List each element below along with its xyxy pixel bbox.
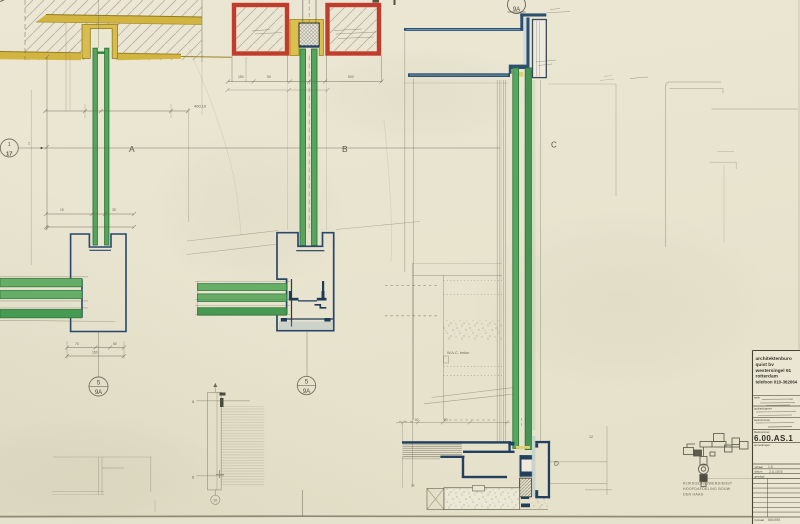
svg-text:12: 12 [589,435,593,439]
svg-text:150: 150 [238,75,244,79]
svg-text:quist bv: quist bv [756,362,775,368]
svg-text:A: A [129,144,135,154]
svg-text:datum: datum [755,470,763,474]
svg-text:150: 150 [92,351,98,355]
svg-text:460,10: 460,10 [194,104,207,109]
svg-text:opdrachtgever: opdrachtgever [754,406,772,410]
svg-text:werk: werk [754,396,761,400]
svg-text:2x: 2x [411,484,415,488]
svg-text:werknummer: werknummer [754,418,770,422]
svg-text:35: 35 [112,208,116,212]
svg-text:2-6-1976: 2-6-1976 [769,470,783,474]
svg-text:telefoon 010-362064: telefoon 010-362064 [756,380,798,385]
svg-text:opmerkingen: opmerkingen [754,443,771,447]
svg-text:HOOFDAFDELING BOUW: HOOFDAFDELING BOUW [683,487,731,491]
svg-text:6.00.AS.1: 6.00.AS.1 [754,434,793,443]
svg-text:DEN HAAG: DEN HAAG [683,493,704,497]
svg-text:2: 2 [28,142,30,146]
svg-text:architektenburo: architektenburo [756,356,792,362]
svg-text:80: 80 [113,342,117,346]
svg-text:15: 15 [60,208,64,212]
svg-text:9A: 9A [303,389,310,395]
svg-text:westersingel 91: westersingel 91 [755,368,792,374]
svg-text:10: 10 [213,499,217,503]
svg-text:50: 50 [415,418,419,422]
svg-text:9A: 9A [95,390,102,396]
svg-text:1: 1 [8,142,11,148]
svg-text:RIJKSGEBOUWENDIENST: RIJKSGEBOUWENDIENST [683,482,733,486]
svg-text:17: 17 [6,152,12,158]
svg-text:formaat: formaat [755,518,765,522]
svg-text:50: 50 [267,75,271,79]
svg-text:gevolgd: gevolgd [755,474,765,478]
svg-text:840x594: 840x594 [768,518,780,522]
svg-text:9A: 9A [513,7,520,13]
svg-text:C: C [551,141,557,150]
svg-text:B: B [342,144,348,154]
svg-text:80: 80 [444,418,448,422]
svg-text:W.A.C. beton: W.A.C. beton [447,351,469,355]
svg-text:70: 70 [75,342,79,346]
svg-text:1:5: 1:5 [768,465,773,469]
svg-text:schaal: schaal [755,465,763,469]
